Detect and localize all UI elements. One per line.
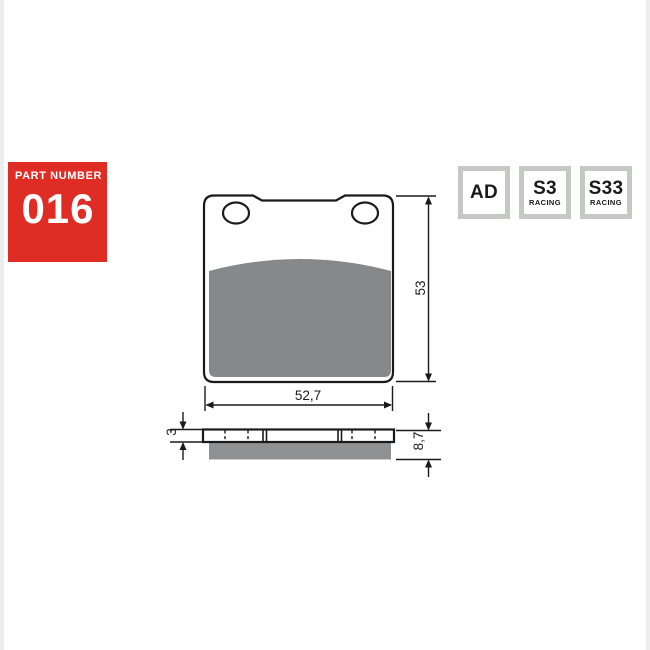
brake-pad-technical-drawing: 53 52,7 [0,0,650,650]
plate-thickness-label: 3 [164,428,179,436]
friction-material-front [209,259,391,377]
width-dimension-label: 52,7 [295,388,321,403]
total-thickness-label: 8,7 [411,432,426,451]
backing-plate-side [203,430,394,443]
mounting-hole-left [223,203,249,224]
mounting-hole-right [352,203,378,224]
brake-pad-side-view [203,430,394,460]
height-dimension-label: 53 [413,280,428,295]
brake-pad-front-view [204,196,393,383]
friction-material-side [209,442,391,460]
